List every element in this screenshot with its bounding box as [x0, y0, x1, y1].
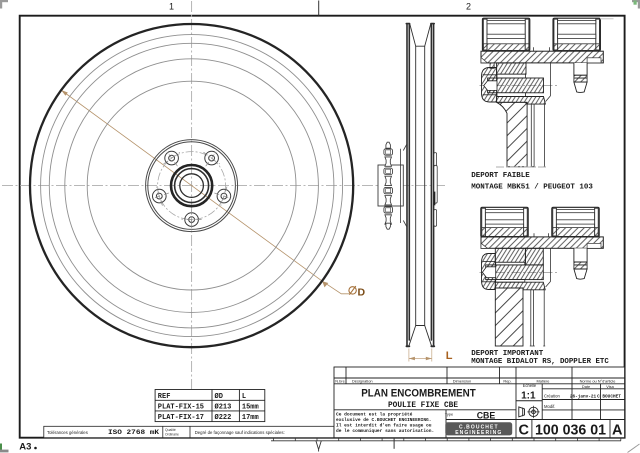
svg-text:Ø222: Ø222: [215, 413, 232, 422]
svg-text:PLAT-FIX-17: PLAT-FIX-17: [158, 414, 204, 422]
svg-text:MONTAGE MBK51 / PEUGEOT 103: MONTAGE MBK51 / PEUGEOT 103: [471, 183, 593, 191]
svg-text:Modif.: Modif.: [544, 404, 555, 409]
svg-text:ISO 2768 mK: ISO 2768 mK: [108, 429, 159, 436]
svg-text:Qualité: Qualité: [165, 428, 176, 432]
svg-text:Désignation: Désignation: [352, 379, 373, 384]
svg-text:ØD: ØD: [215, 392, 223, 401]
svg-text:L: L: [242, 393, 246, 401]
svg-text:C: C: [519, 422, 530, 438]
svg-text:MONTAGE BIDALOT RS, DOPPLER ET: MONTAGE BIDALOT RS, DOPPLER ETC: [471, 358, 609, 366]
svg-text:C BOUCHET: C BOUCHET: [597, 395, 621, 400]
svg-text:Degré de façonnage sauf indica: Degré de façonnage sauf indications spéc…: [195, 430, 285, 435]
svg-text:L: L: [446, 350, 453, 362]
svg-text:CBE: CBE: [477, 410, 496, 420]
svg-text:Tolérances générales: Tolérances générales: [47, 430, 88, 435]
svg-text:Matière: Matière: [537, 379, 550, 384]
svg-text:Ø213: Ø213: [215, 403, 232, 412]
svg-text:DEPORT FAIBLE: DEPORT FAIBLE: [471, 172, 530, 180]
svg-text:2: 2: [466, 2, 471, 12]
svg-text:26-janv-21: 26-janv-21: [570, 395, 597, 400]
svg-text:15mm: 15mm: [242, 404, 259, 412]
svg-text:Dimension: Dimension: [453, 379, 471, 384]
svg-text:17mm: 17mm: [242, 414, 259, 422]
svg-text:Ce document est la propriété: Ce document est la propriété: [336, 412, 413, 418]
svg-text:A: A: [612, 422, 623, 438]
svg-text:N.bre: N.bre: [335, 379, 345, 384]
svg-text:D: D: [358, 286, 366, 298]
svg-text:PLAN ENCOMBREMENT: PLAN ENCOMBREMENT: [361, 387, 476, 399]
svg-text:A3: A3: [19, 442, 31, 453]
svg-text:Date: Date: [582, 384, 590, 389]
svg-text:de le communiquer sans autoris: de le communiquer sans autorisation.: [336, 428, 434, 434]
svg-text:Création: Création: [544, 394, 560, 399]
svg-text:Visa: Visa: [606, 384, 614, 389]
svg-text:Echelle: Echelle: [523, 383, 537, 388]
svg-text:100 036 01: 100 036 01: [535, 422, 606, 438]
svg-text:DEPORT IMPORTANT: DEPORT IMPORTANT: [471, 350, 544, 358]
svg-text:ENGINEERING: ENGINEERING: [455, 430, 502, 436]
svg-text:PLAT-FIX-15: PLAT-FIX-15: [158, 404, 204, 412]
svg-text:POULIE FIXE CBE: POULIE FIXE CBE: [388, 401, 458, 410]
svg-text:Rep.: Rep.: [503, 379, 511, 384]
svg-text:1: 1: [169, 2, 174, 12]
svg-text:Il est interdit d'en faire usa: Il est interdit d'en faire usage ou: [336, 423, 432, 429]
svg-text:exclusive de C.BOUCHET ENGINEE: exclusive de C.BOUCHET ENGINEERING.: [336, 417, 432, 423]
svg-text:REF: REF: [158, 393, 171, 401]
svg-text:1:1: 1:1: [521, 391, 536, 402]
svg-text:Type: Type: [445, 412, 453, 417]
svg-text:Ordinaire: Ordinaire: [165, 432, 179, 436]
